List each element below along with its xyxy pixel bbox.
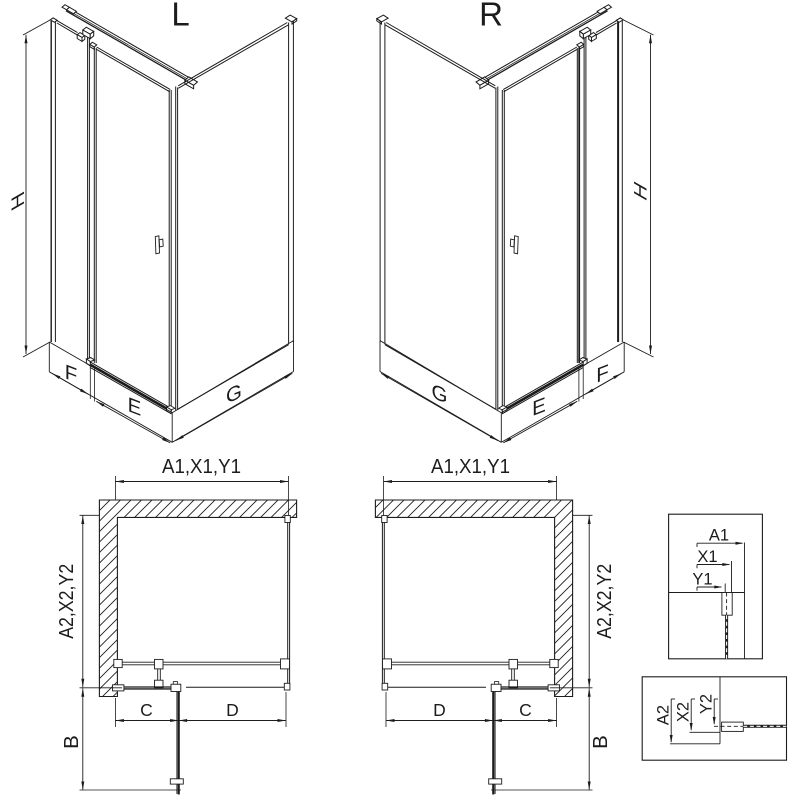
svg-text:A1,X1,Y1: A1,X1,Y1	[162, 456, 241, 478]
svg-text:D: D	[226, 700, 239, 720]
svg-text:Y1: Y1	[692, 570, 712, 588]
svg-text:B: B	[60, 735, 83, 749]
svg-text:B: B	[589, 735, 612, 749]
svg-text:L: L	[171, 0, 189, 33]
svg-text:C: C	[519, 700, 532, 720]
svg-text:F: F	[596, 360, 609, 388]
svg-text:X2: X2	[675, 702, 693, 722]
svg-text:X1: X1	[697, 548, 717, 566]
svg-text:A2: A2	[655, 705, 673, 725]
svg-text:Y2: Y2	[698, 694, 716, 714]
svg-text:F: F	[65, 360, 78, 388]
svg-text:C: C	[140, 700, 153, 720]
svg-text:A2,X2,Y2: A2,X2,Y2	[594, 564, 616, 639]
svg-text:R: R	[479, 0, 503, 33]
svg-text:A1,X1,Y1: A1,X1,Y1	[431, 456, 510, 478]
svg-text:A1: A1	[709, 527, 729, 545]
svg-text:A2,X2,Y2: A2,X2,Y2	[56, 564, 78, 639]
svg-text:D: D	[433, 700, 446, 720]
